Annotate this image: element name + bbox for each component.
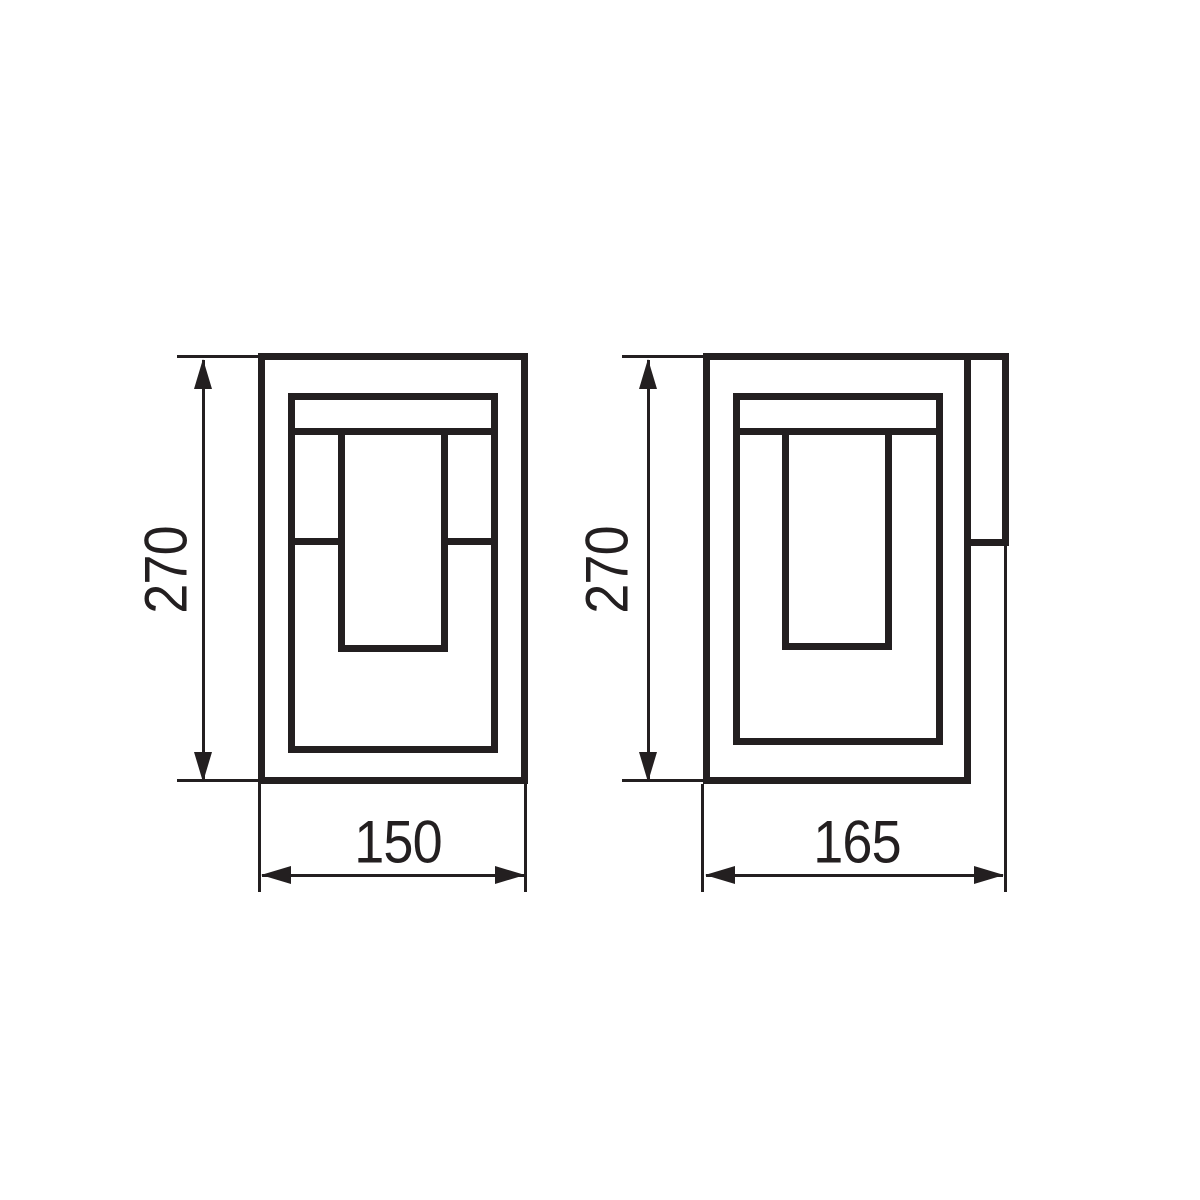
side-depth-arrowhead-left	[705, 866, 735, 884]
side-height-dim-label: 270	[573, 526, 642, 613]
front-height-extension-line-top	[177, 355, 262, 358]
front-width-arrowhead-right	[495, 866, 525, 884]
front-height-arrowhead-down	[194, 752, 212, 782]
side-height-extension-line-top	[622, 355, 707, 358]
side-view-mount-flange-bottom	[964, 539, 1009, 546]
front-height-arrowhead-up	[194, 359, 212, 389]
technical-drawing-canvas: 270 150 270 165	[0, 0, 1200, 1200]
front-view-diffuser	[338, 428, 448, 652]
side-depth-arrowhead-right	[974, 866, 1004, 884]
side-height-dimension-line	[647, 360, 650, 781]
front-width-arrowhead-left	[261, 866, 291, 884]
side-depth-extension-line-right	[1004, 546, 1007, 892]
front-height-extension-line-bottom	[177, 779, 262, 782]
front-height-dimension-line	[202, 360, 205, 781]
front-height-dim-label: 270	[132, 526, 201, 613]
front-view-mid-stub-right	[448, 538, 491, 545]
side-view-mount-flange-right	[1002, 353, 1009, 546]
side-depth-extension-line-left	[701, 784, 704, 892]
side-height-extension-line-bottom	[622, 779, 707, 782]
front-width-dim-label: 150	[354, 808, 441, 877]
side-view-diffuser	[782, 428, 892, 650]
side-depth-dim-label: 165	[813, 808, 900, 877]
side-height-arrowhead-up	[639, 359, 657, 389]
front-view-mid-stub-left	[295, 538, 338, 545]
side-height-arrowhead-down	[639, 752, 657, 782]
